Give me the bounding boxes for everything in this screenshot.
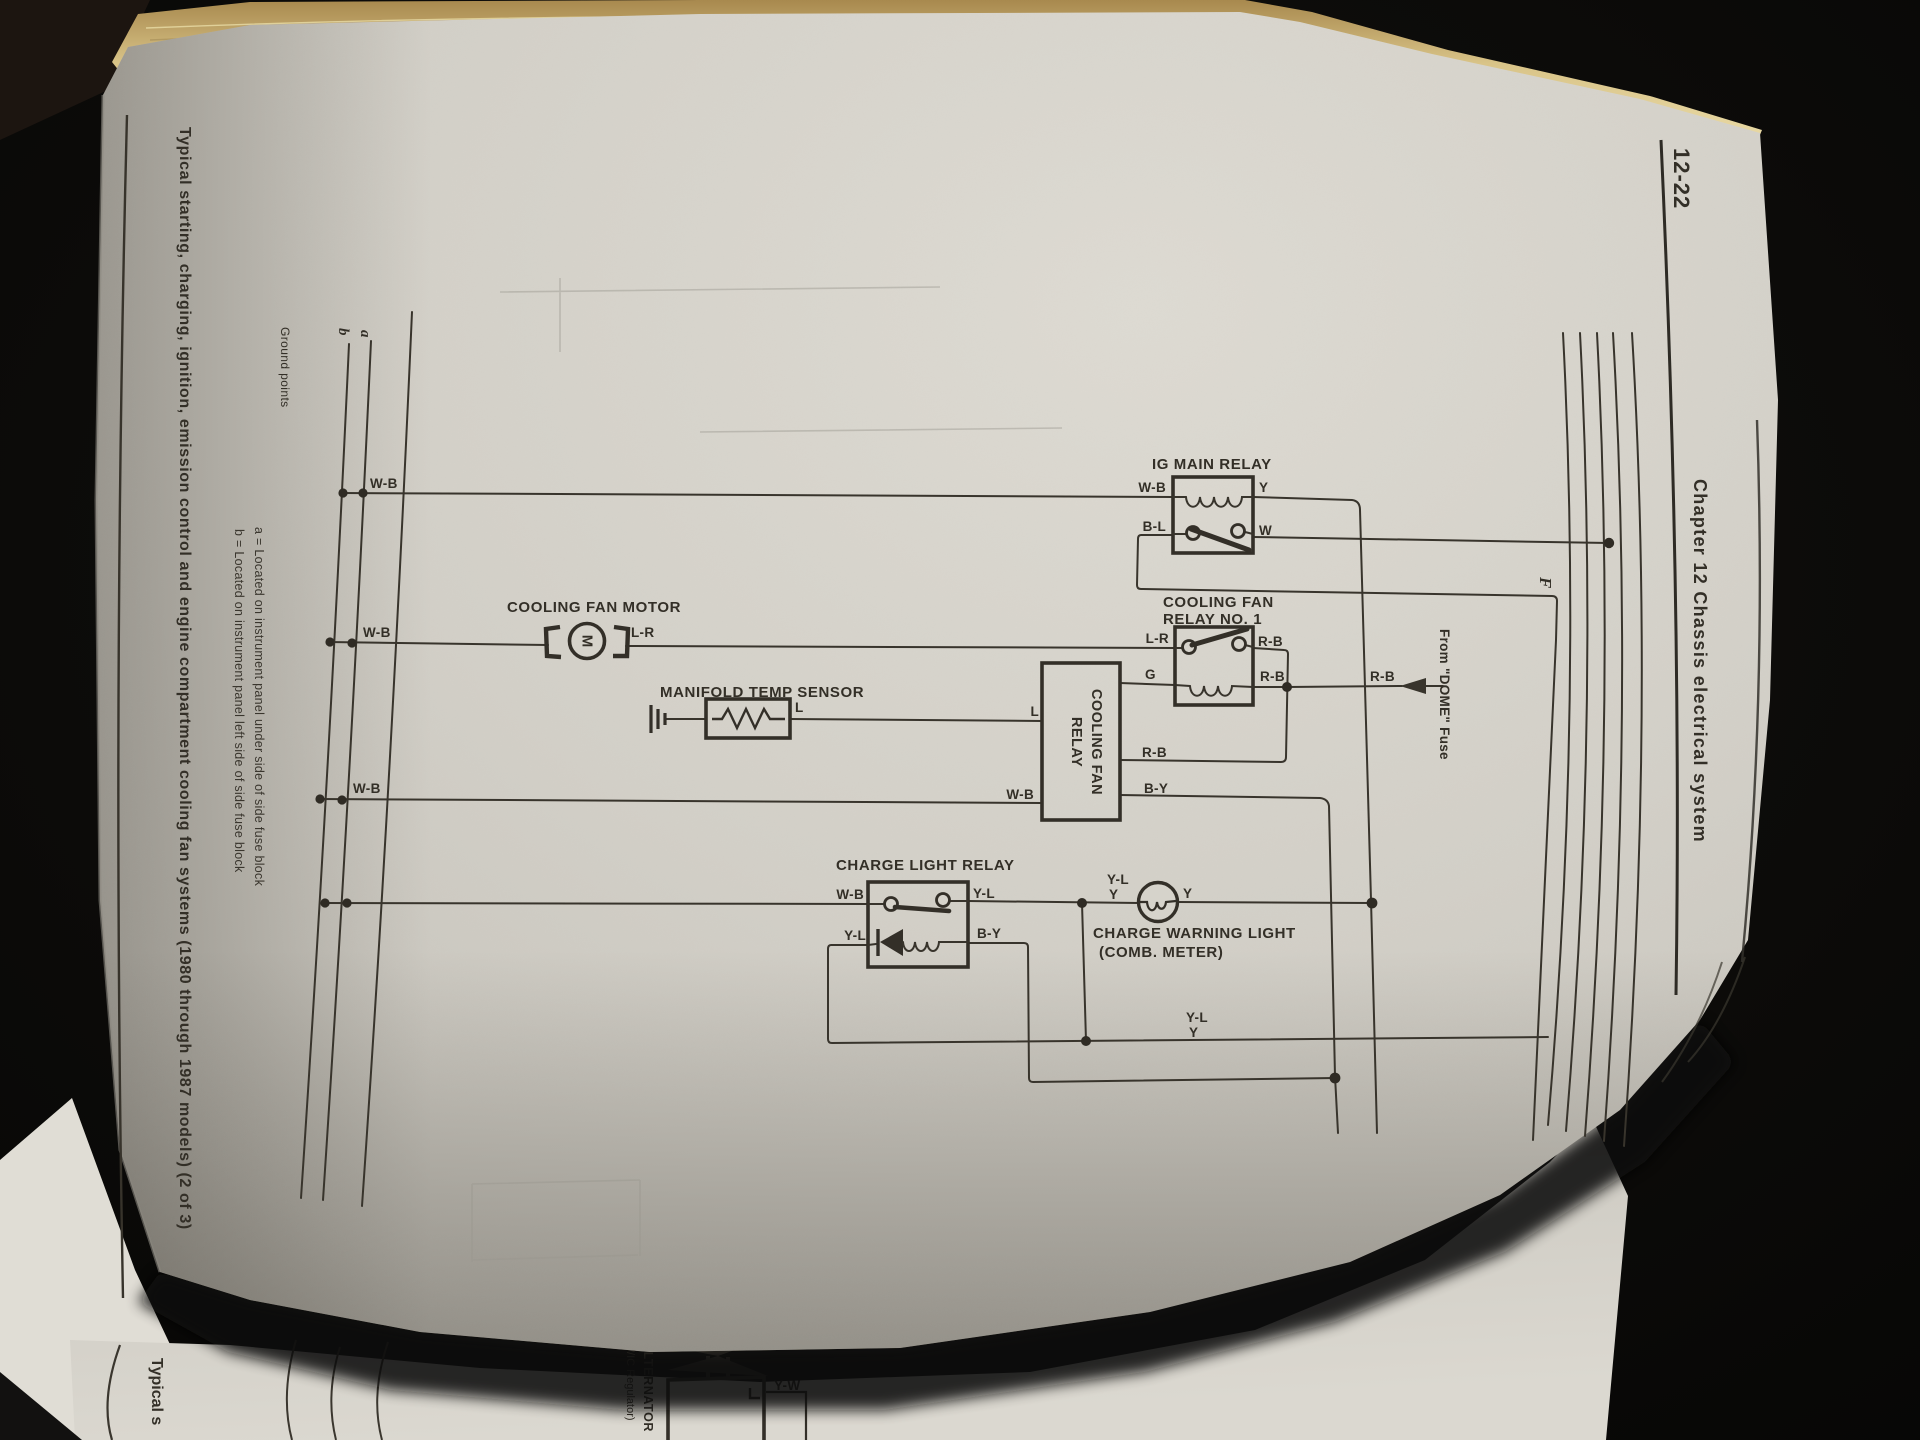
charge-yl-top-label: Y-L: [973, 886, 995, 901]
chapter-header: Chapter 12 Chassis electrical system: [1690, 479, 1710, 843]
module-label-line2: RELAY: [1068, 717, 1084, 767]
charge-by-label: B-Y: [977, 926, 1001, 941]
next-page-caption: Typical s: [148, 1358, 165, 1425]
wire-wb-4: [323, 903, 868, 904]
bus-label-a: a: [357, 330, 373, 338]
bottom-y-label: Y: [1189, 1025, 1198, 1040]
page-number: 12-22: [1669, 148, 1694, 209]
warning-light-title-line1: CHARGE WARNING LIGHT: [1093, 925, 1296, 942]
warning-yl-label: Y-L: [1107, 872, 1129, 887]
motor-m-label: M: [579, 635, 596, 648]
ig-bl-label: B-L: [1143, 519, 1166, 534]
module-by-label: B-Y: [1144, 781, 1168, 796]
charge-wb-label: W-B: [836, 887, 864, 902]
connector-f-label: F: [1536, 576, 1555, 589]
warning-y-left-label: Y: [1109, 887, 1118, 902]
bus-wb-3-label: W-B: [353, 781, 381, 796]
fan-motor-title: COOLING FAN MOTOR: [507, 599, 681, 616]
motor-lr-label: L-R: [631, 625, 654, 640]
ig-y-label: Y: [1259, 480, 1268, 495]
warning-y-right-label: Y: [1183, 886, 1192, 901]
sensor-l-label: L: [795, 700, 804, 715]
relay1-title-line1: COOLING FAN: [1163, 594, 1274, 611]
module-rb-label: R-B: [1142, 745, 1167, 760]
charge-yl-low-label: Y-L: [844, 928, 866, 943]
charge-warning-light: [1139, 883, 1178, 922]
relay1-title-line2: RELAY NO. 1: [1163, 611, 1262, 628]
ig-wb-label: W-B: [1138, 480, 1166, 495]
charge-relay-title: CHARGE LIGHT RELAY: [836, 857, 1015, 874]
warning-light-title-line2: (COMB. METER): [1099, 944, 1223, 961]
bottom-yl-label: Y-L: [1186, 1010, 1208, 1025]
ground-note-a: a = Located on instrument panel under si…: [252, 527, 266, 887]
dome-rb-label: R-B: [1370, 669, 1395, 684]
relay1-rb-mid-label: R-B: [1260, 669, 1285, 684]
caption-text: Typical starting, charging, ignition, em…: [176, 127, 193, 1230]
temp-sensor-title: MANIFOLD TEMP SENSOR: [660, 684, 864, 701]
relay1-rb-top-label: R-B: [1258, 634, 1283, 649]
module-label-line1: COOLING FAN: [1088, 689, 1104, 795]
main-page: [96, 12, 1778, 1352]
bus-wb-1-label: W-B: [370, 476, 398, 491]
module-wb-label: W-B: [1006, 787, 1034, 802]
bus-label-b: b: [335, 328, 351, 336]
manual-page-scene: Typical s ALTERNATOR (W/IC Regulator) Y-…: [0, 0, 1920, 1440]
ground-points-label: Ground points: [278, 327, 292, 408]
ig-w-label: W: [1259, 523, 1272, 538]
dome-source-label: From "DOME" Fuse: [1437, 629, 1452, 760]
module-g-label: G: [1145, 667, 1156, 682]
bus-wb-2-label: W-B: [363, 625, 391, 640]
book-photo: Typical s ALTERNATOR (W/IC Regulator) Y-…: [0, 0, 1920, 1440]
relay1-lr-label: L-R: [1146, 631, 1169, 646]
module-l-label: L: [1030, 704, 1039, 719]
ground-note-b: b = Located on instrument panel left sid…: [232, 529, 246, 873]
ig-relay-title: IG MAIN RELAY: [1152, 456, 1272, 473]
